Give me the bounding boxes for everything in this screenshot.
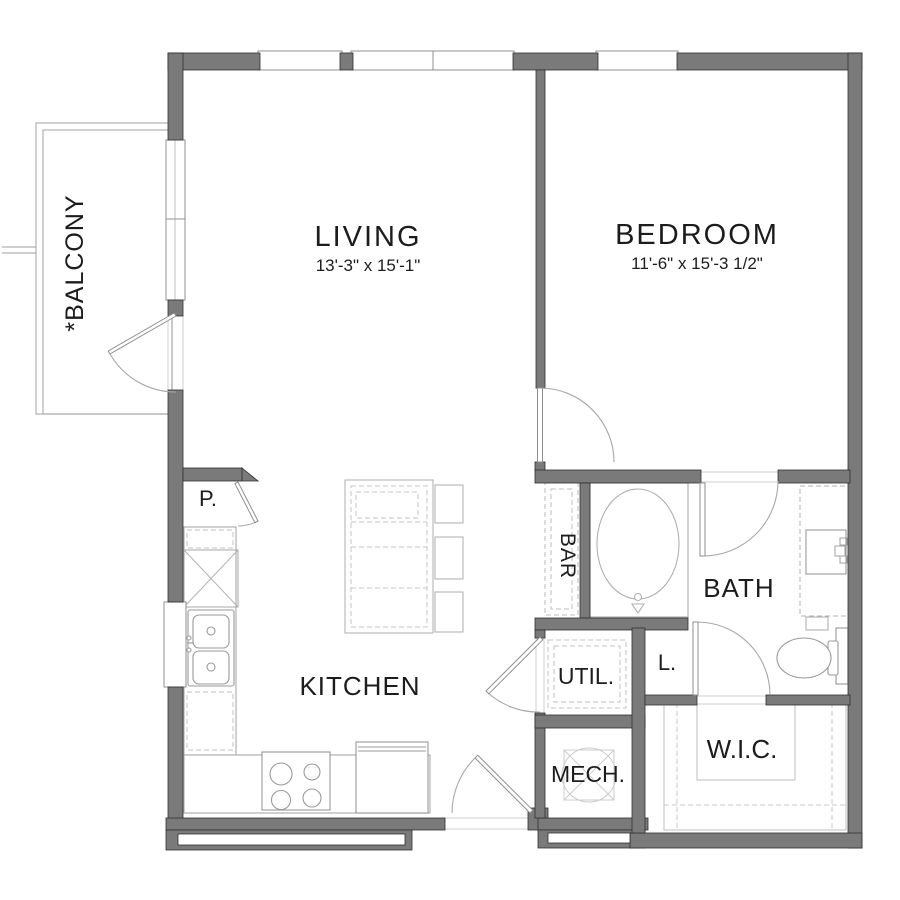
pantry-door-leaf (235, 482, 258, 523)
bedroom-door-arc (540, 388, 614, 462)
kitchen-island (345, 480, 433, 633)
kitchen-label: KITCHEN (299, 671, 420, 701)
bedroom-door-leaf (538, 388, 543, 462)
window-living-1 (258, 51, 342, 70)
wic-label: W.I.C. (707, 734, 778, 764)
pantry-label: P. (199, 486, 217, 511)
util-door-arc (486, 691, 540, 712)
window-kitchen (164, 602, 186, 687)
wall-bedroom-south-right (778, 470, 850, 483)
entry-door-leaf (475, 755, 533, 813)
kitchen-sink (187, 610, 234, 686)
window-bedroom (596, 51, 678, 70)
balcony-label: *BALCONY (61, 194, 89, 331)
bath-vanity (800, 486, 850, 630)
bath-door-arc (703, 481, 778, 556)
bath-wic-door-leaf (693, 622, 698, 695)
wic-shelving (664, 703, 846, 830)
wall-bedroom-south-left (535, 470, 701, 483)
bathtub (590, 483, 688, 617)
entry-door-arc (452, 758, 475, 813)
wall-living-bedroom (536, 70, 545, 388)
bedroom-label: BEDROOM (615, 219, 779, 251)
wall-linen-bottom (645, 695, 697, 705)
balcony-door-leaf (108, 313, 176, 354)
wall-mech-left (535, 713, 545, 818)
wall-wic-left (632, 628, 645, 833)
island-stools (435, 485, 463, 632)
balcony-outline (36, 123, 172, 414)
building-edge-ticks (2, 247, 36, 253)
wall-bar-tub (580, 483, 590, 618)
toilet (777, 628, 848, 684)
util-door-leaf (486, 637, 543, 694)
refrigerator (356, 742, 428, 813)
wall-hall (535, 618, 688, 630)
wall-joint-slots (178, 833, 630, 845)
utility-label: UTIL. (558, 663, 614, 689)
walls (166, 53, 862, 850)
living-label: LIVING (314, 221, 421, 253)
floor-plan: LIVING 13'-3" x 15'-1" BEDROOM 11'-6" x … (0, 0, 900, 900)
bath-door-leaf (700, 483, 705, 556)
floor-plan-canvas: LIVING 13'-3" x 15'-1" BEDROOM 11'-6" x … (0, 0, 900, 900)
stove (262, 752, 330, 810)
bath-wic-door-arc (697, 622, 770, 695)
balcony-door-arc (110, 354, 176, 392)
bath-label: BATH (703, 573, 774, 603)
wall-pantry (183, 468, 242, 481)
linen-label: L. (658, 650, 676, 675)
wall-wic-top (766, 695, 850, 705)
wall-util-mech (535, 715, 645, 728)
living-dimensions: 13'-3" x 15'-1" (316, 256, 421, 275)
bedroom-dimensions: 11'-6" x 15'-3 1/2" (631, 254, 763, 273)
mechanical-label: MECH. (551, 761, 625, 787)
bar-label: BAR (556, 533, 579, 579)
